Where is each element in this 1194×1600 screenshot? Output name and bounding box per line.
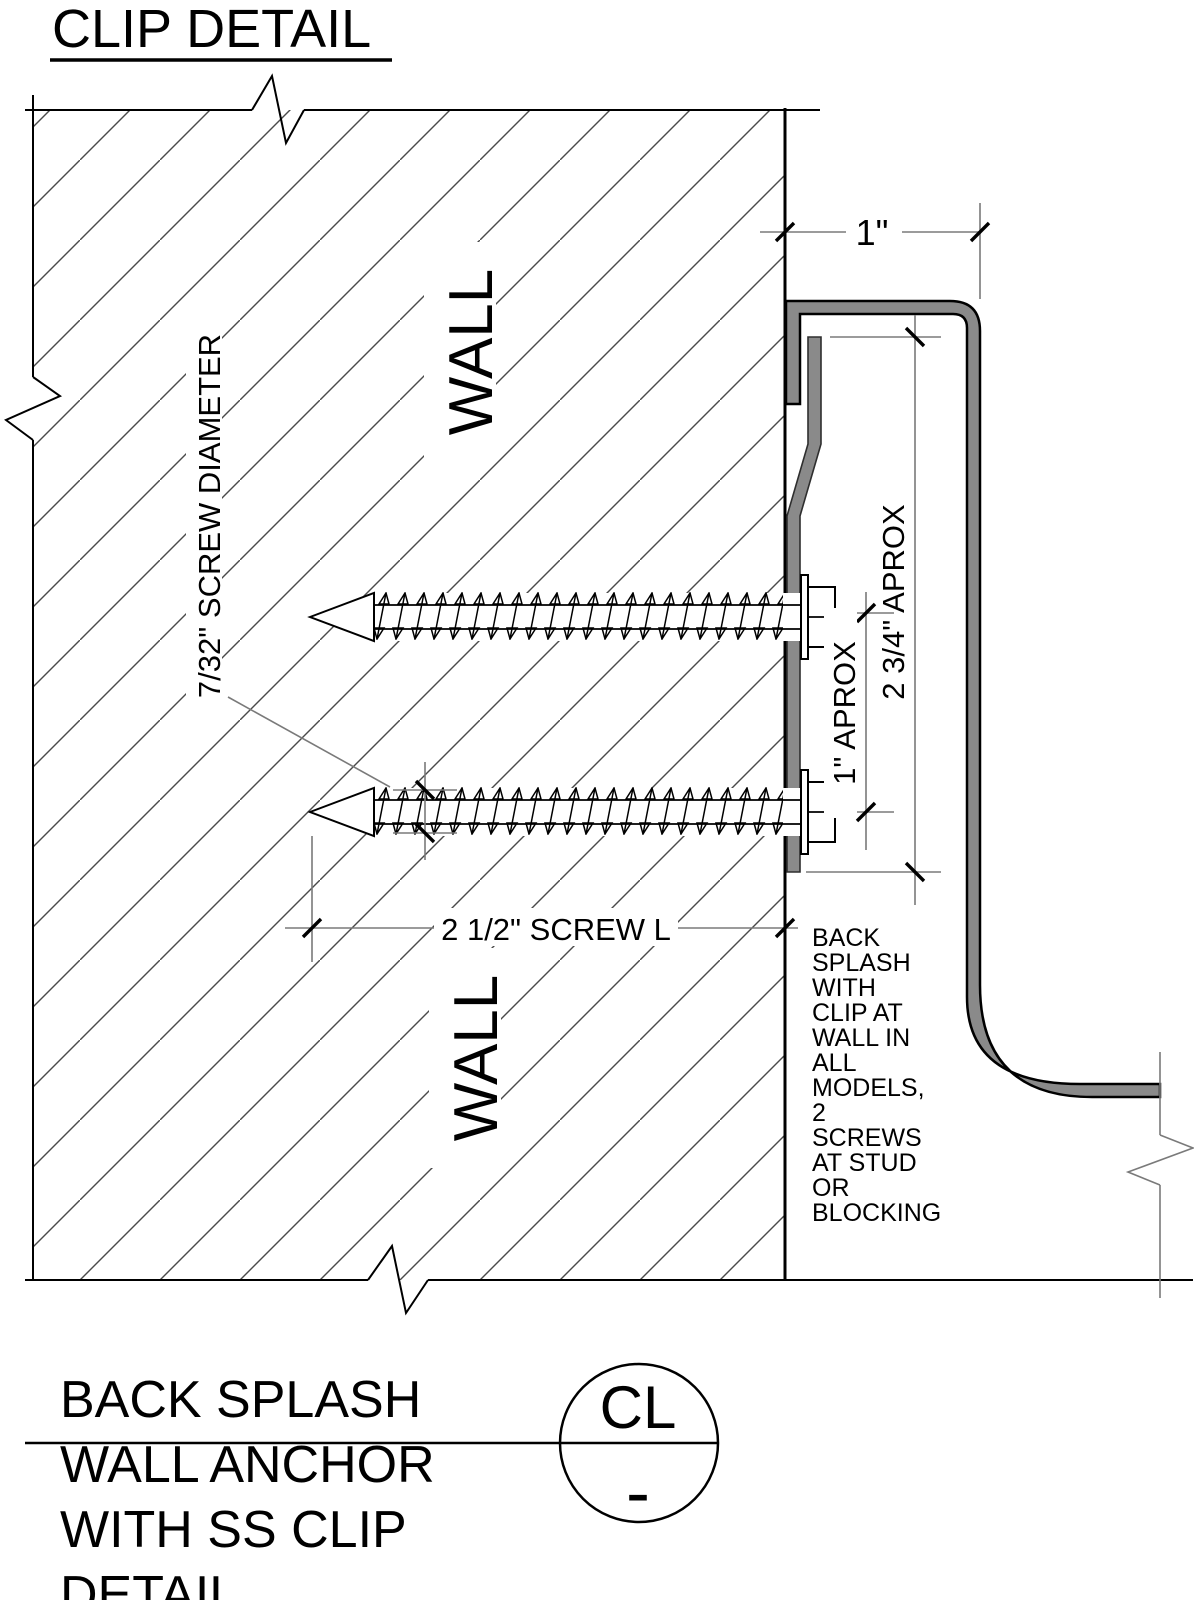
dim-clip-height-label: 2 3/4" APROX xyxy=(876,504,911,700)
dim-screw-length-label: 2 1/2" SCREW L xyxy=(441,912,671,947)
svg-text:WALL: WALL xyxy=(442,975,511,1142)
screw-upper-washer xyxy=(801,575,808,659)
detail-bubble-sheet: - xyxy=(626,1453,650,1533)
svg-text:CLIP DETAIL: CLIP DETAIL xyxy=(52,0,371,59)
dim-top-offset-label: 1" xyxy=(856,212,889,253)
screw-lower-threads xyxy=(372,787,785,835)
title-block-line3: WITH SS CLIP xyxy=(60,1501,407,1559)
dim-top-offset: 1" xyxy=(760,203,989,299)
title-block-line4: DETAIL xyxy=(60,1566,238,1600)
drawing-title: CLIP DETAIL xyxy=(50,0,392,60)
dim-screw-spacing-label: 1" APROX xyxy=(827,641,862,785)
note-text: BACK SPLASH WITH CLIP AT WALL IN ALL MOD… xyxy=(812,924,941,1227)
break-symbol-counter xyxy=(1128,1135,1193,1185)
clip-detail-drawing: 1" 2 3/4" APROX 1" APROX 7 xyxy=(0,0,1194,1600)
title-block-line2: WALL ANCHOR xyxy=(60,1436,435,1494)
detail-bubble-tag: CL xyxy=(600,1374,677,1441)
wall-label-lower: WALL xyxy=(429,948,511,1168)
screw-lower-washer xyxy=(801,770,808,854)
dim-screw-diameter-label: 7/32" SCREW DIAMETER xyxy=(192,334,227,698)
svg-text:WALL: WALL xyxy=(437,269,506,436)
drawing-canvas: 1" 2 3/4" APROX 1" APROX 7 xyxy=(0,0,1194,1600)
title-block-line1: BACK SPLASH xyxy=(60,1371,421,1429)
title-block: BACK SPLASH WALL ANCHOR WITH SS CLIP DET… xyxy=(25,1364,718,1600)
wall-hatch xyxy=(33,110,785,1280)
wall-label-upper: WALL xyxy=(424,242,506,462)
screw-upper-threads xyxy=(372,592,785,640)
